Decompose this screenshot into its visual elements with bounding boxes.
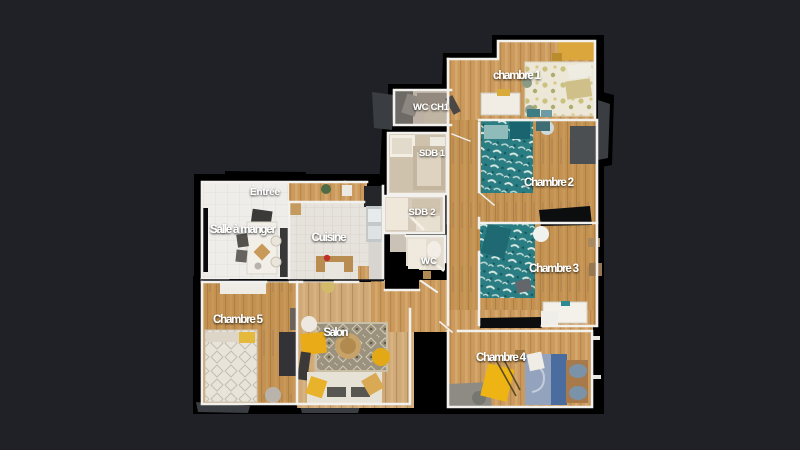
svg-text:WC: WC bbox=[421, 256, 437, 267]
svg-text:SDB 1: SDB 1 bbox=[419, 148, 446, 159]
svg-text:Salon: Salon bbox=[324, 327, 349, 339]
svg-text:Chambre 2: Chambre 2 bbox=[524, 177, 574, 189]
svg-text:Chambre 4: Chambre 4 bbox=[476, 352, 527, 364]
svg-text:Chambre 5: Chambre 5 bbox=[213, 314, 264, 326]
svg-text:Salle à manger: Salle à manger bbox=[210, 224, 277, 236]
svg-text:WC CH1: WC CH1 bbox=[413, 102, 450, 113]
svg-text:chambre 1: chambre 1 bbox=[493, 70, 542, 82]
svg-text:Chambre 3: Chambre 3 bbox=[529, 263, 579, 275]
svg-text:SDB 2: SDB 2 bbox=[409, 207, 436, 218]
svg-text:Entrée: Entrée bbox=[250, 187, 280, 198]
svg-text:Cuisine: Cuisine bbox=[312, 232, 347, 244]
